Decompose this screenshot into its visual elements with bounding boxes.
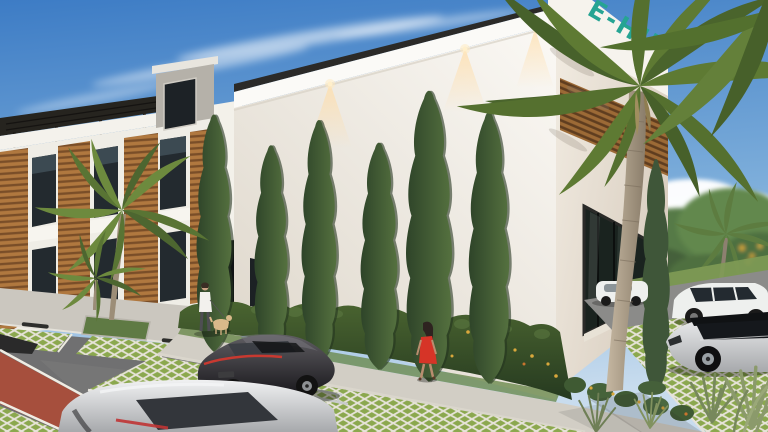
penthouse-window	[164, 78, 196, 130]
render-canvas: E-HUB	[0, 0, 768, 432]
architectural-render: E-HUB	[0, 0, 768, 432]
